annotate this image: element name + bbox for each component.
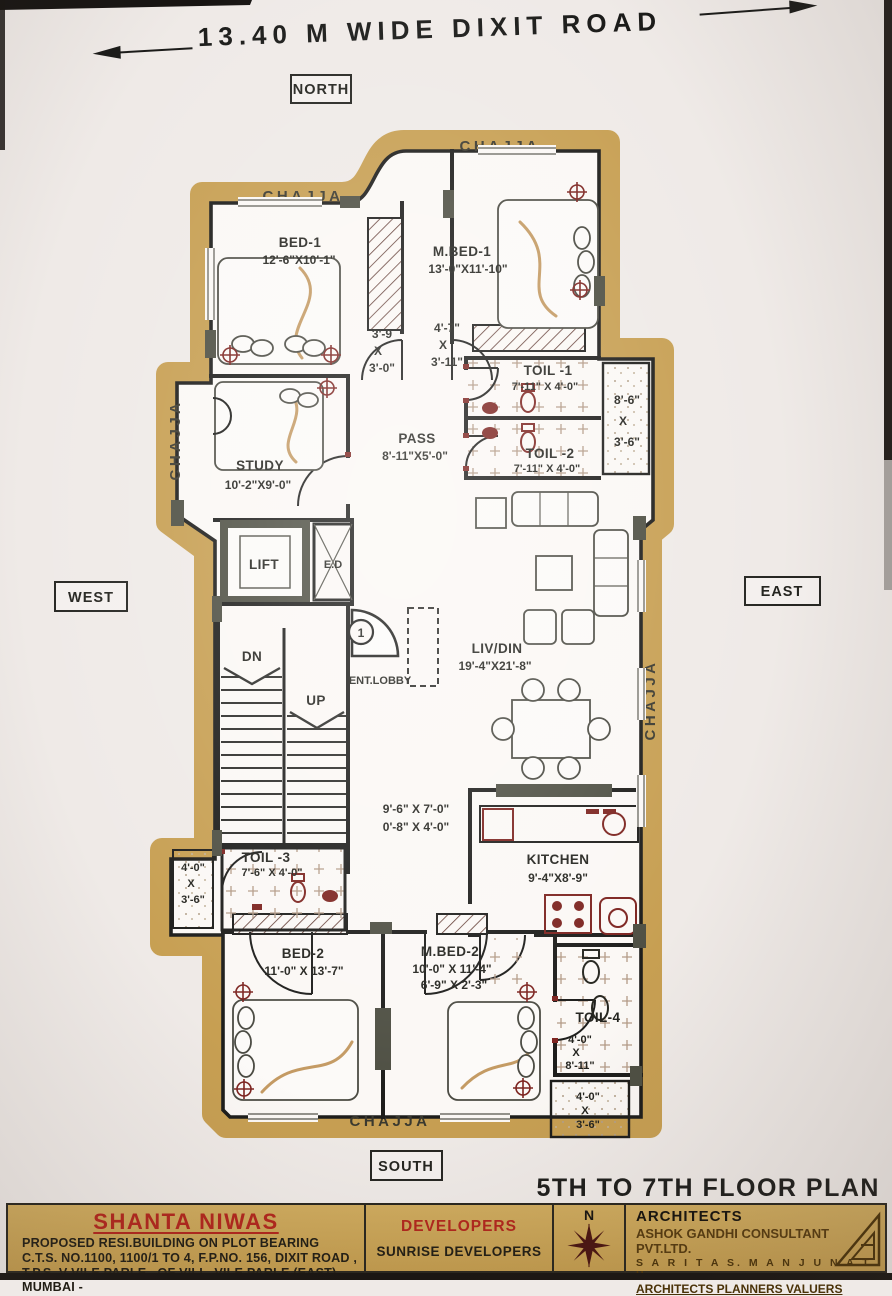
project-cell: SHANTA NIWAS PROPOSED RESI.BUILDING ON P… [8, 1205, 366, 1271]
study-furniture [213, 382, 323, 470]
mbed2-dims1: 10'-0" X 11'-4" [412, 962, 491, 976]
west-label: WEST [68, 590, 114, 606]
mbed1-furniture [498, 200, 598, 328]
south-label: SOUTH [378, 1159, 434, 1175]
door-number: 1 [358, 626, 365, 640]
wardrobe-mbed2 [437, 914, 487, 934]
svg-text:3'-9: 3'-9 [372, 327, 393, 341]
bed2-furniture [233, 1000, 358, 1100]
mbed2-label: M.BED-2 [421, 944, 479, 959]
toil1-label: TOIL -1 [524, 363, 573, 378]
bed1-dims: 12'-6"X10'-1" [262, 253, 335, 267]
study-dims: 10'-2"X9'-0" [225, 478, 291, 492]
bed1-label: BED-1 [279, 235, 322, 250]
svg-text:4'-0": 4'-0" [576, 1091, 600, 1103]
bed2-label: BED-2 [282, 946, 325, 961]
svg-text:X: X [572, 1047, 580, 1059]
bed2-dims: 11'-0" X 13'-7" [264, 964, 343, 978]
svg-text:X: X [619, 414, 627, 428]
toil3-dims: 7'-6" X 4'-0" [242, 867, 303, 879]
svg-text:0'-8" X 4'-0": 0'-8" X 4'-0" [383, 820, 449, 834]
title-block: SHANTA NIWAS PROPOSED RESI.BUILDING ON P… [6, 1203, 887, 1273]
plan-title: 5TH TO 7TH FLOOR PLAN [536, 1174, 880, 1202]
svg-text:3'-11": 3'-11" [431, 355, 463, 369]
project-line-1: PROPOSED RESI.BUILDING ON PLOT BEARING [22, 1236, 358, 1250]
study-label: STUDY [236, 458, 284, 473]
pass-label: PASS [398, 431, 435, 446]
architects-line-3: ARCHITECTS PLANNERS VALUERS [636, 1282, 879, 1296]
bed1-furniture [218, 258, 340, 364]
up-label: UP [306, 693, 326, 708]
dn-label: DN [242, 649, 262, 664]
compass-cell: N [554, 1205, 626, 1271]
svg-text:3'-6": 3'-6" [181, 894, 205, 906]
compass-n-label: N [584, 1207, 594, 1223]
south-box: SOUTH [371, 1151, 442, 1180]
mbed2-dims2: 6'-9" X 2'-3" [421, 978, 487, 992]
svg-text:4'-7": 4'-7" [434, 321, 460, 335]
project-name: SHANTA NIWAS [14, 1209, 358, 1235]
svg-text:X: X [187, 878, 195, 890]
chajja-label-bottom: CHAJJA [349, 1113, 430, 1130]
project-line-2: C.T.S. NO.1100, 1100/1 TO 4, F.P.NO. 156… [22, 1251, 358, 1265]
north-box: NORTH [291, 75, 351, 103]
mbed2-furniture [448, 1002, 540, 1100]
ed-label: E.D [324, 559, 342, 571]
svg-text:8'-11": 8'-11" [565, 1060, 594, 1072]
toil1-dims: 7'-11" X 4'-0" [512, 381, 578, 393]
toil2-label: TOIL -2 [526, 446, 575, 461]
chajja-label-west: CHAJJA [167, 399, 184, 480]
svg-text:4'-0": 4'-0" [181, 862, 205, 874]
road-arrow-right [699, 0, 817, 17]
toil2-dims: 7'-11" X 4'-0" [514, 463, 580, 475]
livdin-label: LIV/DIN [472, 641, 523, 656]
svg-text:9'-6" X 7'-0": 9'-6" X 7'-0" [383, 802, 449, 816]
architects-logo [827, 1209, 883, 1269]
road-arrow-left [92, 43, 192, 59]
floor-plan-drawing: 13.40 M WIDE DIXIT ROAD NORTH WEST EAST … [0, 0, 892, 1280]
east-box: EAST [745, 577, 820, 605]
svg-text:4'-0": 4'-0" [568, 1034, 592, 1046]
photo-bottom-edge [0, 1273, 892, 1280]
developers-cell: DEVELOPERS SUNRISE DEVELOPERS [366, 1205, 554, 1271]
road-header: 13.40 M WIDE DIXIT ROAD [92, 0, 819, 60]
lift-label: LIFT [249, 557, 279, 572]
west-box: WEST [55, 582, 127, 611]
wardrobe-bed1 [368, 218, 402, 330]
svg-text:3'-6": 3'-6" [614, 435, 640, 449]
road-label: 13.40 M WIDE DIXIT ROAD [197, 6, 662, 52]
svg-text:X: X [581, 1105, 589, 1117]
project-line-3: T.P.S. V VILE PARLE , OF VILL .VILE PARL… [22, 1266, 358, 1294]
pass-dims: 8'-11"X5'-0" [382, 449, 448, 463]
ent-lobby-label: ENT.LOBBY [349, 675, 412, 687]
mbed1-label: M.BED-1 [433, 244, 491, 259]
mbed1-dims: 13'-0"X11'-10" [428, 262, 507, 276]
developers-label: DEVELOPERS [401, 1218, 517, 1236]
toil3-label: TOIL -3 [242, 850, 291, 865]
architects-cell: ARCHITECTS ASHOK GANDHI CONSULTANT PVT.L… [626, 1205, 885, 1271]
north-label: NORTH [293, 82, 350, 98]
livdin-dims: 19'-4"X21'-8" [458, 659, 531, 673]
toil4-label: TOIL-4 [576, 1010, 621, 1025]
compass-star-icon [560, 1223, 618, 1268]
developers-name: SUNRISE DEVELOPERS [376, 1244, 541, 1259]
svg-text:X: X [374, 344, 382, 358]
svg-text:8'-6": 8'-6" [614, 393, 640, 407]
svg-text:X: X [439, 338, 447, 352]
svg-text:3'-0": 3'-0" [369, 361, 395, 375]
kitchen-dims: 9'-4"X8'-9" [528, 871, 588, 885]
svg-text:3'-6": 3'-6" [576, 1119, 600, 1131]
east-label: EAST [761, 584, 804, 600]
kitchen-label: KITCHEN [527, 852, 590, 867]
